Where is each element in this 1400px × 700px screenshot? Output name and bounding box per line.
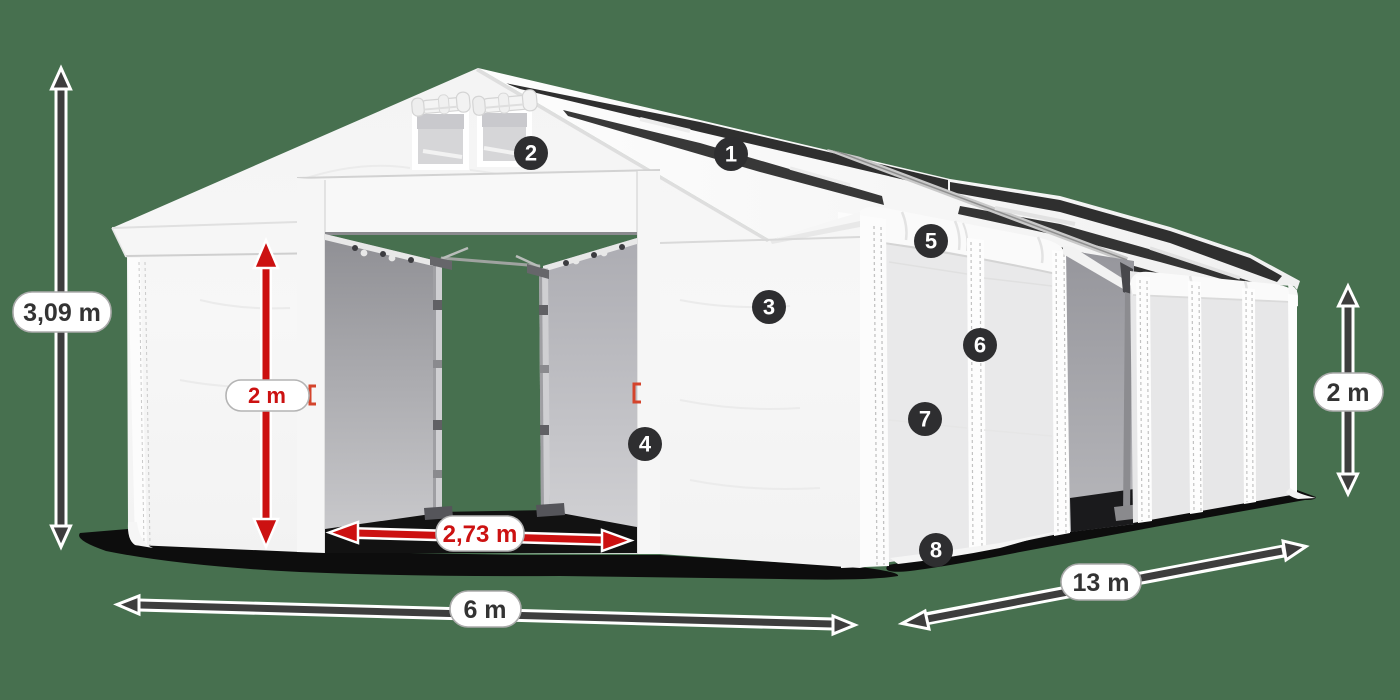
svg-text:7: 7 — [919, 407, 931, 432]
svg-text:6 m: 6 m — [463, 596, 506, 624]
svg-text:2,73 m: 2,73 m — [443, 521, 518, 548]
svg-text:2: 2 — [525, 141, 537, 166]
svg-text:5: 5 — [925, 229, 937, 254]
svg-text:2 m: 2 m — [1326, 379, 1369, 407]
svg-text:8: 8 — [930, 538, 942, 563]
svg-text:1: 1 — [725, 142, 737, 167]
svg-text:13 m: 13 m — [1073, 569, 1130, 597]
svg-text:2 m: 2 m — [248, 383, 286, 408]
svg-text:6: 6 — [974, 333, 986, 358]
svg-text:3,09 m: 3,09 m — [23, 299, 101, 327]
svg-text:3: 3 — [763, 295, 775, 320]
svg-text:4: 4 — [639, 432, 652, 457]
